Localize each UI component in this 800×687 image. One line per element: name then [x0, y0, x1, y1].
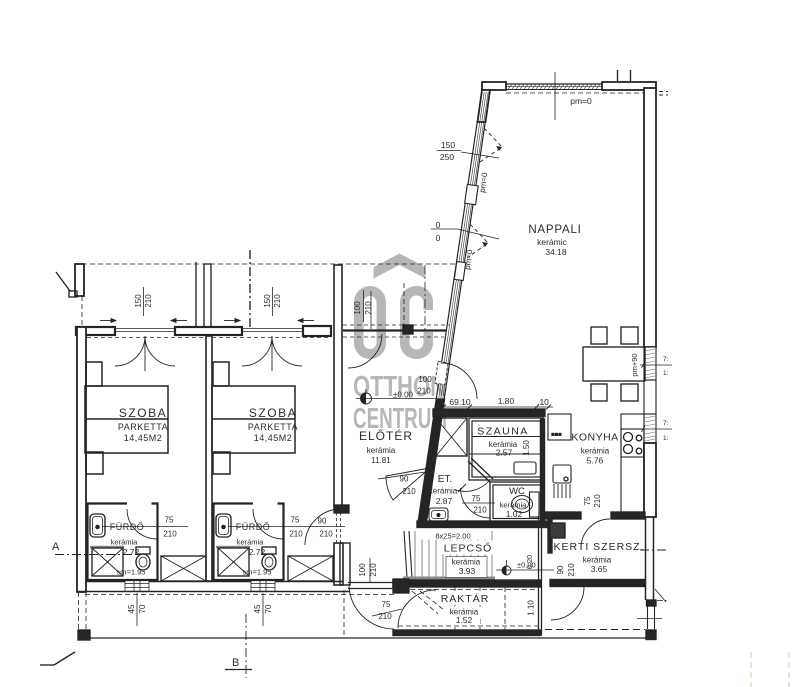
- svg-text:kerámia: kerámia: [429, 487, 458, 496]
- svg-text:8x25=2.00: 8x25=2.00: [435, 532, 470, 541]
- svg-text:210: 210: [473, 506, 487, 515]
- svg-text:1.10: 1.10: [527, 600, 536, 616]
- svg-text:45: 45: [253, 604, 262, 613]
- svg-text:kerámia: kerámia: [237, 538, 265, 547]
- svg-text:150: 150: [134, 294, 143, 308]
- svg-text:75: 75: [165, 516, 174, 525]
- svg-text:1.02: 1.02: [506, 509, 523, 519]
- svg-text:kerámic: kerámic: [537, 237, 568, 247]
- svg-text:11.81: 11.81: [371, 456, 391, 465]
- svg-text:KONYHA: KONYHA: [571, 432, 618, 444]
- svg-text:0: 0: [436, 220, 441, 230]
- svg-text:A: A: [52, 541, 60, 553]
- svg-text:14,45M2: 14,45M2: [124, 433, 163, 443]
- svg-text:RAKTÁR: RAKTÁR: [441, 592, 490, 605]
- svg-text:kerámia: kerámia: [581, 447, 610, 456]
- svg-text:NAPPALI: NAPPALI: [528, 224, 581, 236]
- svg-text:KERTI SZERSZ.: KERTI SZERSZ.: [554, 541, 645, 553]
- svg-text:ET.: ET.: [438, 474, 452, 485]
- svg-text:7:: 7:: [663, 356, 669, 363]
- svg-text:210: 210: [417, 387, 431, 396]
- svg-text:210: 210: [378, 612, 392, 621]
- svg-text:69.10: 69.10: [449, 397, 471, 407]
- svg-text:1:: 1:: [663, 435, 669, 442]
- svg-text:7:: 7:: [663, 420, 669, 427]
- svg-text:100: 100: [353, 301, 362, 315]
- svg-text:90: 90: [400, 475, 409, 484]
- svg-text:1.80: 1.80: [498, 396, 515, 406]
- svg-text:75: 75: [583, 496, 592, 505]
- svg-text:75: 75: [382, 600, 391, 609]
- svg-text:150: 150: [441, 140, 455, 150]
- svg-text:0.20: 0.20: [525, 555, 534, 570]
- svg-text:100: 100: [358, 563, 367, 577]
- svg-text:210: 210: [402, 487, 416, 496]
- svg-text:SZOBA: SZOBA: [119, 406, 167, 420]
- svg-text:kerámia: kerámia: [367, 446, 396, 455]
- svg-text:.10: .10: [537, 397, 549, 407]
- svg-text:3.65: 3.65: [591, 564, 608, 574]
- svg-text:75: 75: [472, 494, 481, 503]
- svg-text:sm=1.95: sm=1.95: [117, 568, 146, 577]
- svg-text:210: 210: [273, 294, 282, 308]
- svg-text:210: 210: [144, 294, 153, 308]
- svg-text:0: 0: [436, 233, 441, 243]
- svg-text:2.72: 2.72: [123, 547, 140, 557]
- svg-text:±0.00: ±0.00: [393, 391, 414, 400]
- svg-text:34.18: 34.18: [545, 247, 567, 257]
- svg-text:3.93: 3.93: [459, 566, 476, 576]
- svg-text:210: 210: [593, 494, 602, 508]
- svg-text:250: 250: [440, 152, 454, 162]
- svg-text:pm=0: pm=0: [570, 96, 592, 106]
- svg-text:2.87: 2.87: [436, 496, 453, 506]
- svg-text:2.72: 2.72: [249, 547, 266, 557]
- svg-text:75: 75: [291, 516, 300, 525]
- svg-text:210: 210: [369, 563, 378, 577]
- svg-text:SZOBA: SZOBA: [249, 406, 297, 420]
- svg-text:2: 2: [530, 630, 537, 634]
- svg-text:PARKETTA: PARKETTA: [248, 422, 298, 432]
- svg-text:210: 210: [567, 563, 576, 577]
- svg-text:1.50: 1.50: [522, 440, 531, 456]
- svg-text:70: 70: [138, 604, 147, 613]
- svg-text:sm=1.95: sm=1.95: [243, 568, 272, 577]
- svg-text:45: 45: [127, 604, 136, 613]
- svg-text:B: B: [232, 657, 239, 669]
- svg-text:150: 150: [263, 294, 272, 308]
- svg-text:70: 70: [264, 604, 273, 613]
- svg-text:1.52: 1.52: [456, 615, 473, 625]
- svg-text:210: 210: [163, 530, 177, 539]
- svg-text:pm+90: pm+90: [630, 353, 639, 376]
- svg-text:5.76: 5.76: [587, 456, 604, 466]
- svg-text:90: 90: [556, 565, 565, 574]
- svg-text:WC: WC: [509, 486, 525, 497]
- svg-text:1:: 1:: [663, 370, 669, 377]
- svg-text:90: 90: [318, 517, 327, 526]
- svg-text:FÜRDŐ: FÜRDŐ: [110, 522, 145, 532]
- svg-text:FÜRDŐ: FÜRDŐ: [236, 522, 271, 532]
- svg-text:ELŐTÉR: ELŐTÉR: [359, 428, 413, 443]
- svg-text:14,45M2: 14,45M2: [254, 433, 293, 443]
- svg-text:LEPCSŐ: LEPCSŐ: [444, 541, 493, 555]
- svg-text:2.57: 2.57: [496, 448, 513, 458]
- svg-text:100: 100: [418, 375, 432, 384]
- svg-text:kerámia: kerámia: [111, 538, 139, 547]
- svg-text:210: 210: [319, 530, 333, 539]
- svg-text:210: 210: [364, 301, 373, 315]
- svg-text:PARKETTA: PARKETTA: [118, 422, 168, 432]
- svg-text:210: 210: [289, 530, 303, 539]
- svg-text:SZAUNA: SZAUNA: [477, 426, 529, 438]
